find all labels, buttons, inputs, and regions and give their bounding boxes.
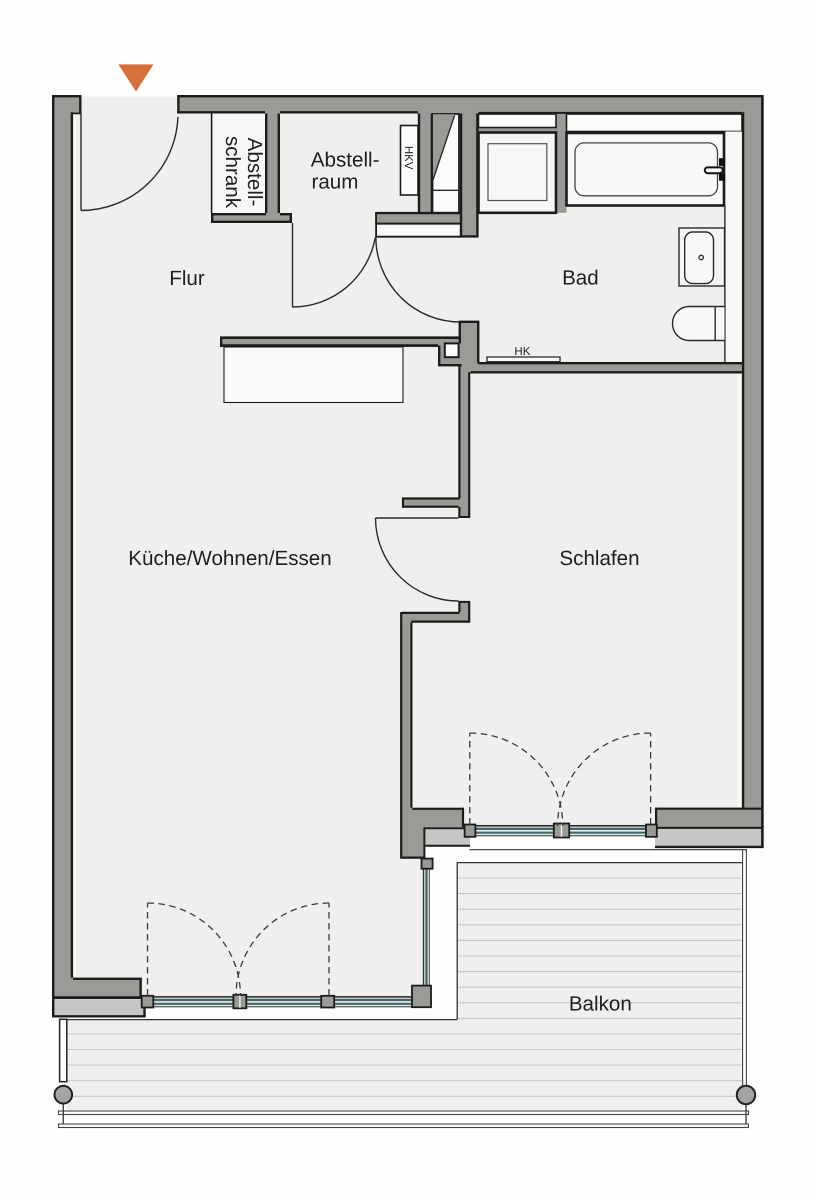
svg-text:Küche/Wohnen/Essen: Küche/Wohnen/Essen bbox=[128, 547, 331, 570]
svg-text:raum: raum bbox=[312, 170, 359, 193]
svg-text:Schlafen: Schlafen bbox=[559, 547, 639, 570]
svg-text:Abstell-: Abstell- bbox=[311, 148, 380, 171]
svg-text:HKV: HKV bbox=[402, 146, 414, 170]
svg-text:Bad: Bad bbox=[562, 267, 599, 290]
svg-text:Balkon: Balkon bbox=[569, 993, 632, 1016]
svg-text:Abstell-: Abstell- bbox=[243, 138, 266, 207]
svg-text:schrank: schrank bbox=[221, 136, 244, 209]
svg-text:Flur: Flur bbox=[169, 267, 205, 290]
svg-text:HK: HK bbox=[514, 346, 530, 358]
